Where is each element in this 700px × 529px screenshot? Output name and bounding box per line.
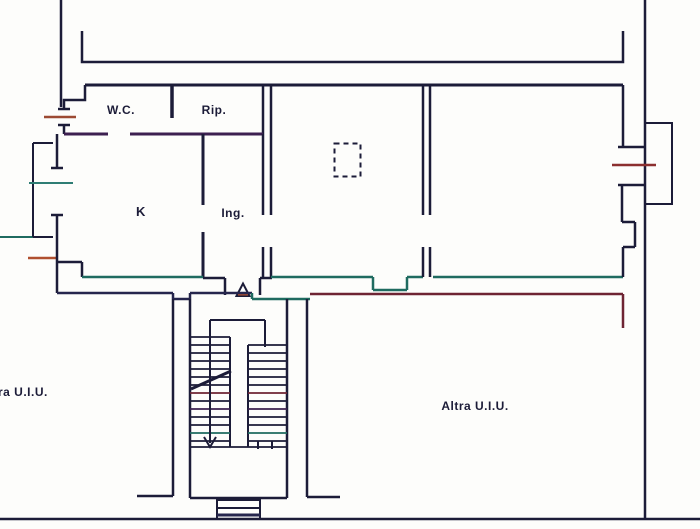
floorplan-svg: W.C. Rip. K Ing. ra U.I.U. Altra U.I.U.	[0, 0, 700, 529]
stair-landing-outline	[210, 320, 265, 347]
room-label-wc: W.C.	[107, 103, 135, 117]
lower-boundary-wall-right	[310, 294, 623, 328]
window-jambs-left-mid	[51, 168, 63, 215]
stair-treads	[190, 337, 287, 447]
unit-label-left: ra U.I.U.	[0, 385, 48, 399]
room-label-ing: Ing.	[221, 206, 244, 220]
central-room-bottom-wall	[271, 277, 423, 290]
room-label-k: K	[136, 204, 146, 219]
k-left-wall	[57, 134, 82, 293]
right-bay-outline	[645, 123, 672, 204]
unit-label-right: Altra U.I.U.	[441, 399, 508, 413]
right-room-right-wall	[622, 85, 635, 277]
stair-hall-outer-left-wall	[137, 299, 173, 496]
stair-well-stringers	[230, 337, 248, 447]
room-label-rip: Rip.	[202, 103, 227, 117]
stair-hall-outer-right-wall	[307, 299, 340, 497]
shaft-dashed-outline	[335, 144, 361, 177]
lower-boundary-wall-left	[57, 293, 252, 299]
floorplan-page: W.C. Rip. K Ing. ra U.I.U. Altra U.I.U.	[0, 0, 700, 529]
left-bay-outline	[33, 143, 53, 237]
neighbor-boundary-top	[82, 31, 623, 62]
